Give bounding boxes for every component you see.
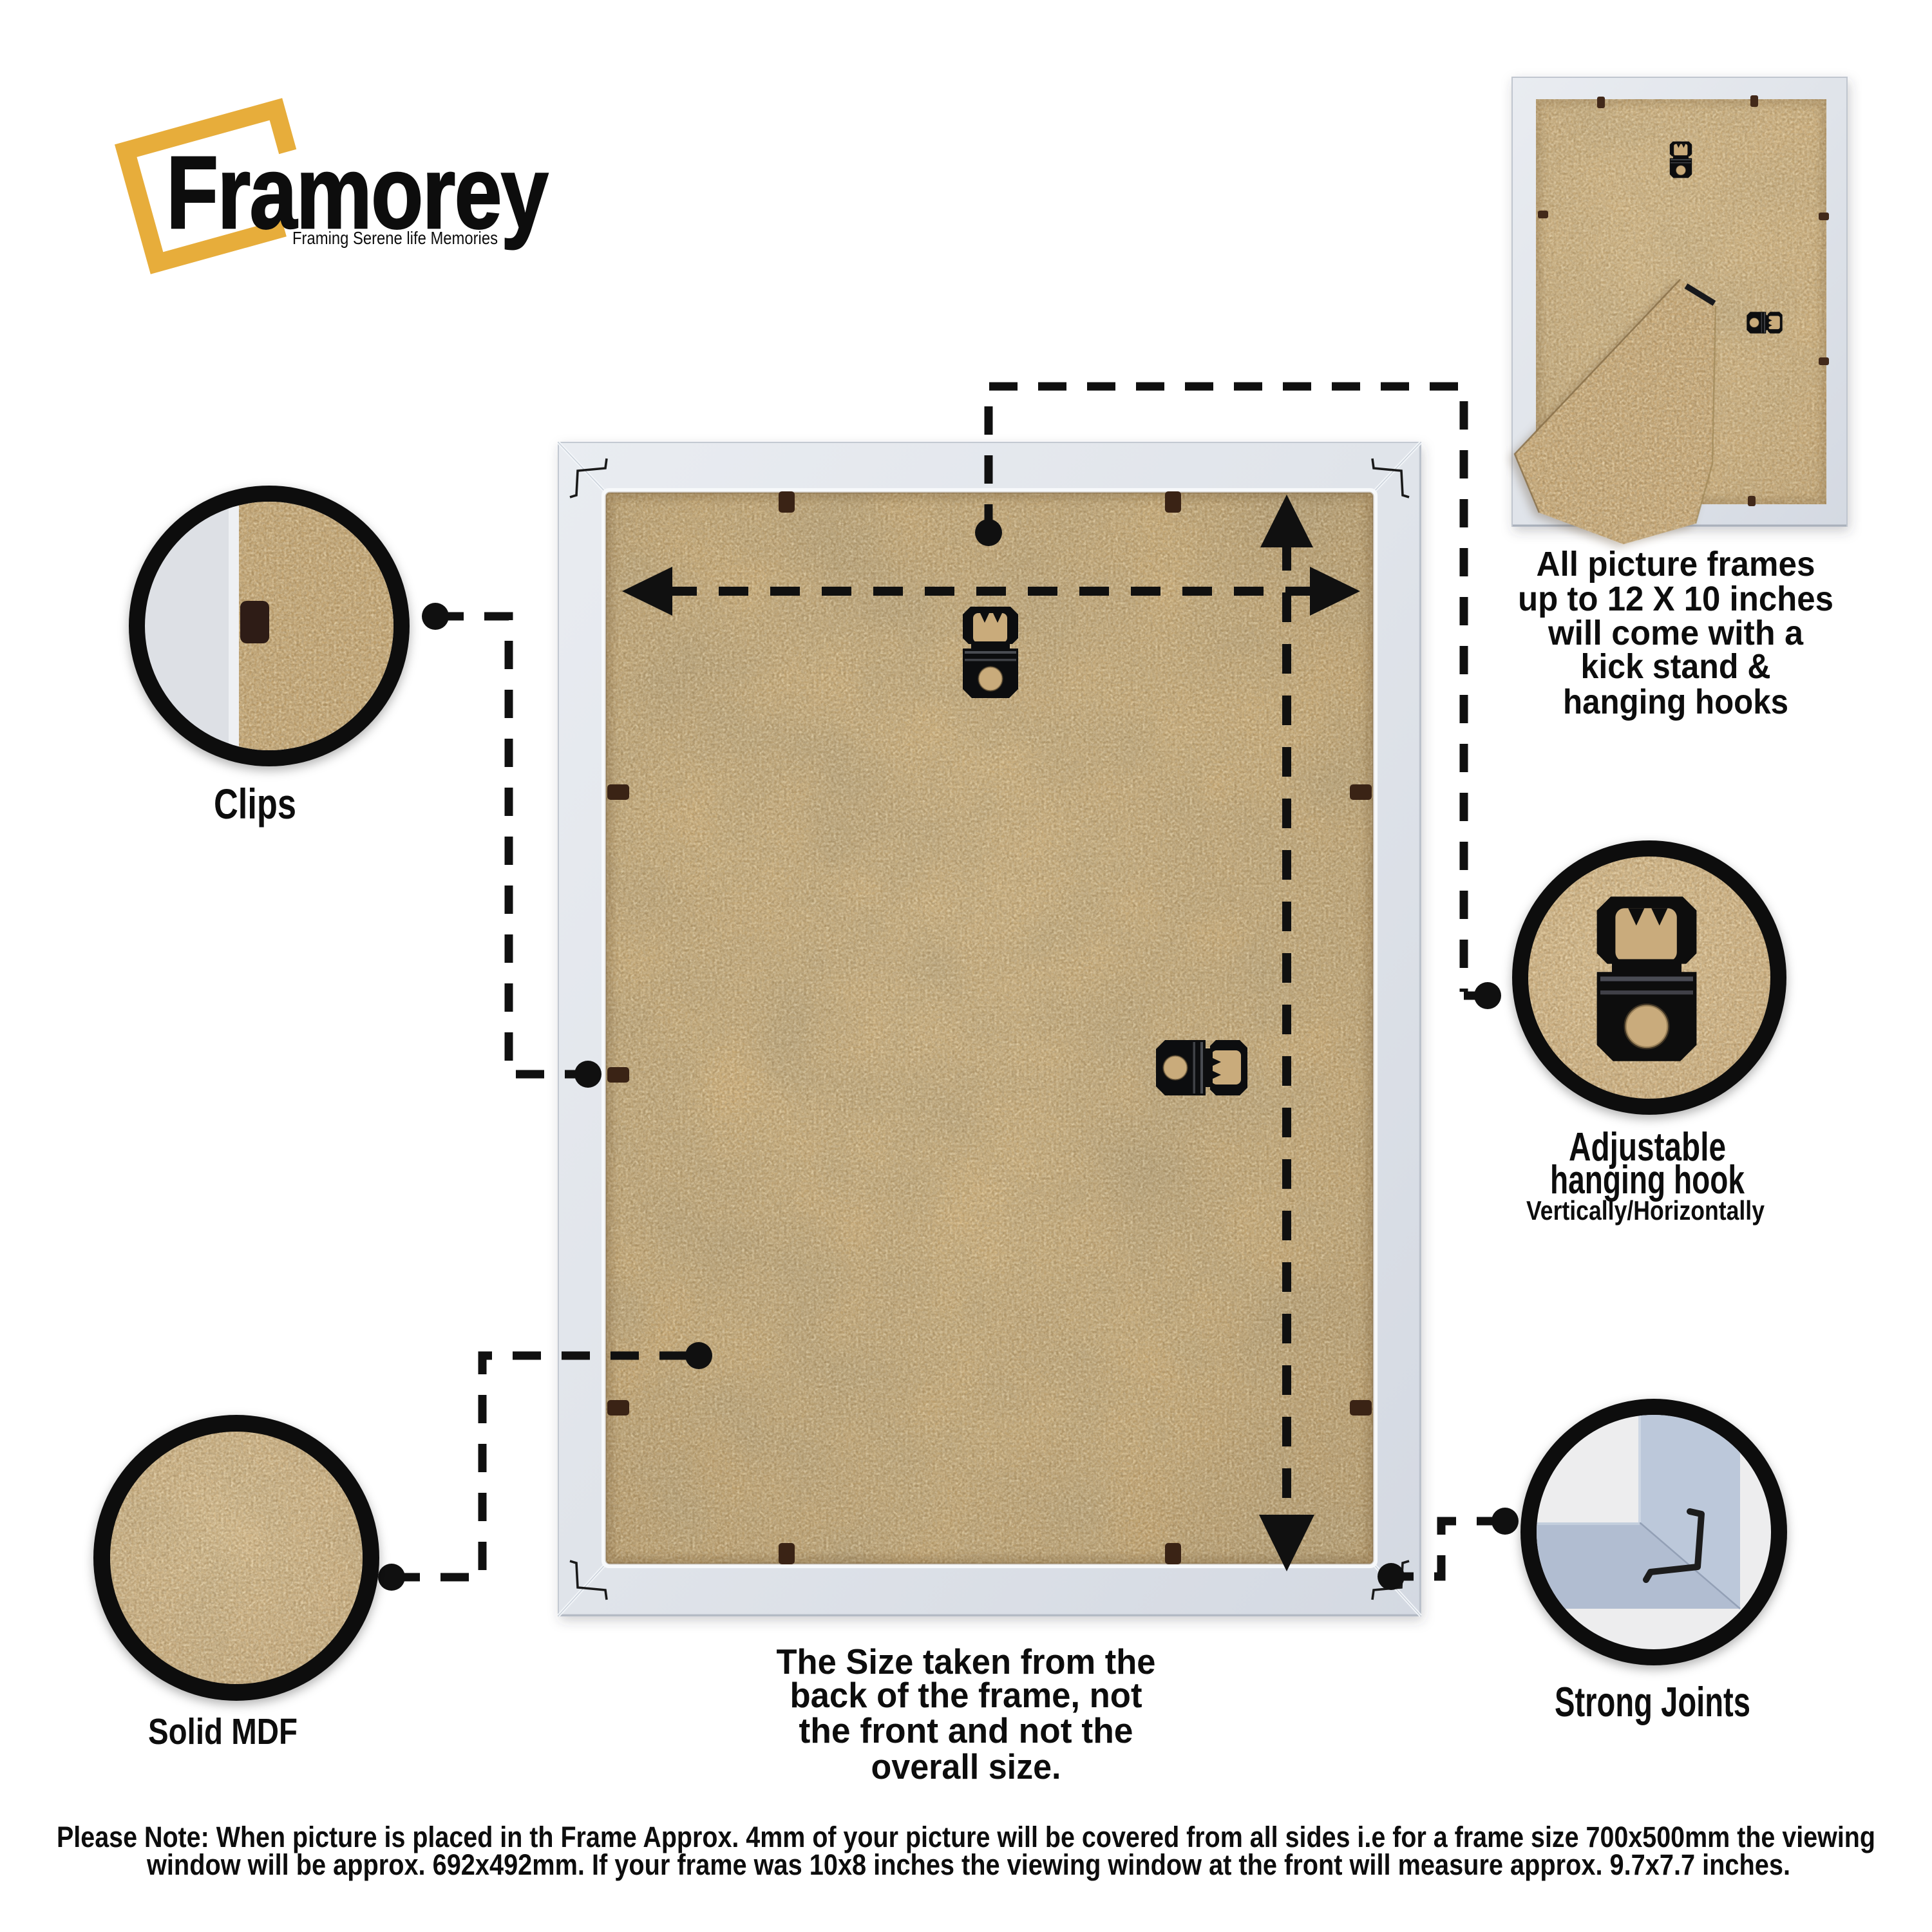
svg-text:overall size.: overall size.: [871, 1747, 1061, 1786]
svg-text:Vertically/Horizontally: Vertically/Horizontally: [1526, 1195, 1765, 1226]
svg-text:Strong Joints: Strong Joints: [1555, 1678, 1750, 1725]
svg-text:the front and not the: the front and not the: [799, 1710, 1133, 1750]
svg-text:Clips: Clips: [214, 780, 296, 828]
svg-text:kick stand &: kick stand &: [1581, 647, 1771, 686]
svg-text:back of the frame, not: back of the frame, not: [790, 1675, 1142, 1715]
svg-text:Framing Serene life Memories: Framing Serene life Memories: [292, 228, 498, 248]
svg-text:window will be approx. 692x492: window will be approx. 692x492mm. If you…: [146, 1848, 1790, 1881]
svg-text:hanging hooks: hanging hooks: [1563, 683, 1788, 721]
svg-text:up to 12 X 10 inches: up to 12 X 10 inches: [1518, 580, 1833, 618]
svg-text:Solid MDF: Solid MDF: [148, 1711, 298, 1752]
svg-text:will come with a: will come with a: [1548, 614, 1804, 652]
svg-text:All picture frames: All picture frames: [1537, 545, 1815, 583]
